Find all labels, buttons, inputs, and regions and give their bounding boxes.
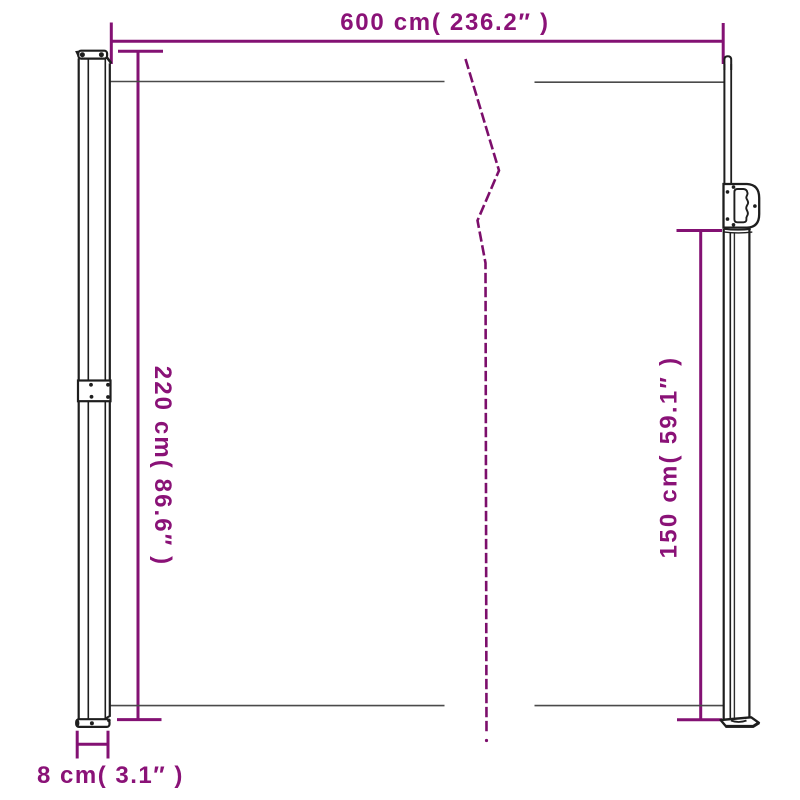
- svg-text:600 cm( 236.2″ ): 600 cm( 236.2″ ): [340, 9, 549, 36]
- svg-text:8 cm( 3.1″ ): 8 cm( 3.1″ ): [37, 762, 184, 789]
- svg-text:150 cm( 59.1″ ): 150 cm( 59.1″ ): [656, 356, 683, 559]
- svg-text:220 cm( 86.6″ ): 220 cm( 86.6″ ): [149, 366, 176, 566]
